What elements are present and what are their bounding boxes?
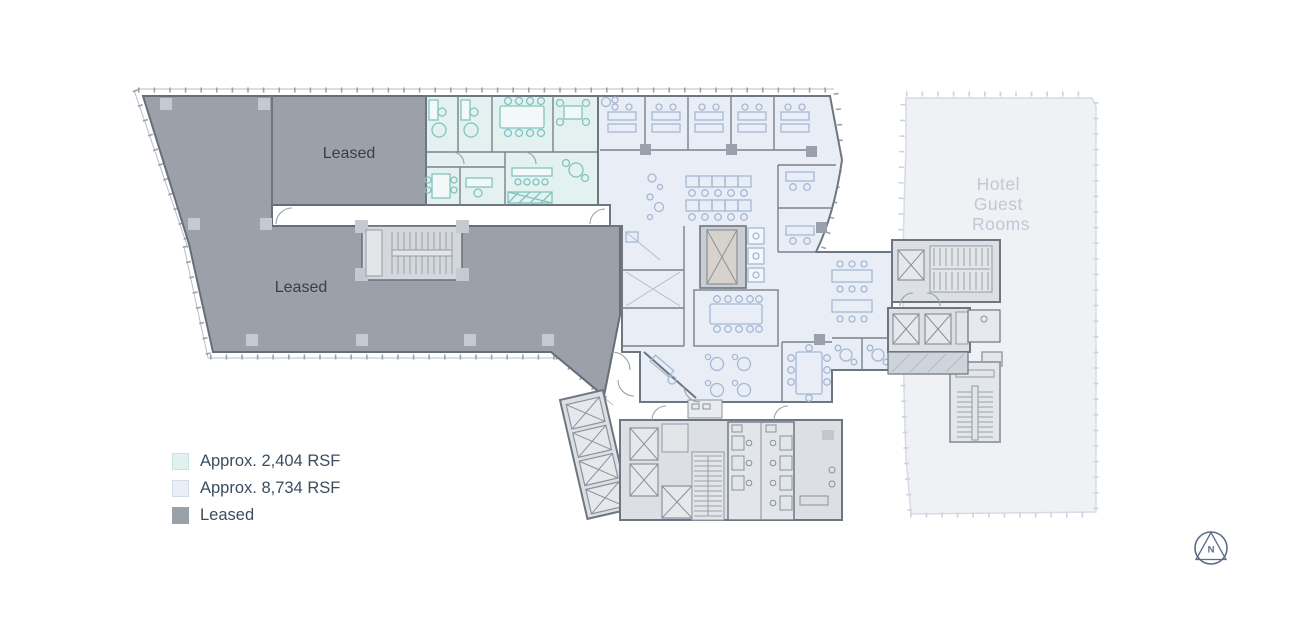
- compass-n-label: N: [1208, 545, 1215, 556]
- legend-label-leased: Leased: [200, 506, 254, 525]
- legend-item-2404: Approx. 2,404 RSF: [172, 453, 340, 470]
- hotel-guest-rooms-label: Hotel Guest Rooms: [972, 174, 1030, 234]
- leased-upper-label: Leased: [323, 145, 376, 162]
- legend-swatch-leased: [172, 507, 189, 524]
- leased-lower-label: Leased: [275, 279, 328, 296]
- floorplan-page: Hotel Guest Rooms: [0, 0, 1290, 620]
- compass: N: [1195, 532, 1227, 564]
- legend: Approx. 2,404 RSF Approx. 8,734 RSF Leas…: [172, 453, 340, 534]
- legend-item-8734: Approx. 8,734 RSF: [172, 480, 340, 497]
- bottom-core: [560, 390, 842, 520]
- legend-swatch-8734: [172, 480, 189, 497]
- legend-swatch-2404: [172, 453, 189, 470]
- core-block: [620, 400, 842, 520]
- legend-item-leased: Leased: [172, 507, 340, 524]
- legend-label-2404: Approx. 2,404 RSF: [200, 452, 340, 471]
- hotel-region: Hotel Guest Rooms: [901, 94, 1096, 515]
- unit-2404-region: [425, 96, 600, 205]
- main-elevator-shaft: [700, 226, 764, 288]
- hotel-outline: [903, 98, 1096, 514]
- legend-label-8734: Approx. 8,734 RSF: [200, 479, 340, 498]
- leased-stair-core: [355, 220, 469, 281]
- unit-8734-region: [598, 96, 892, 402]
